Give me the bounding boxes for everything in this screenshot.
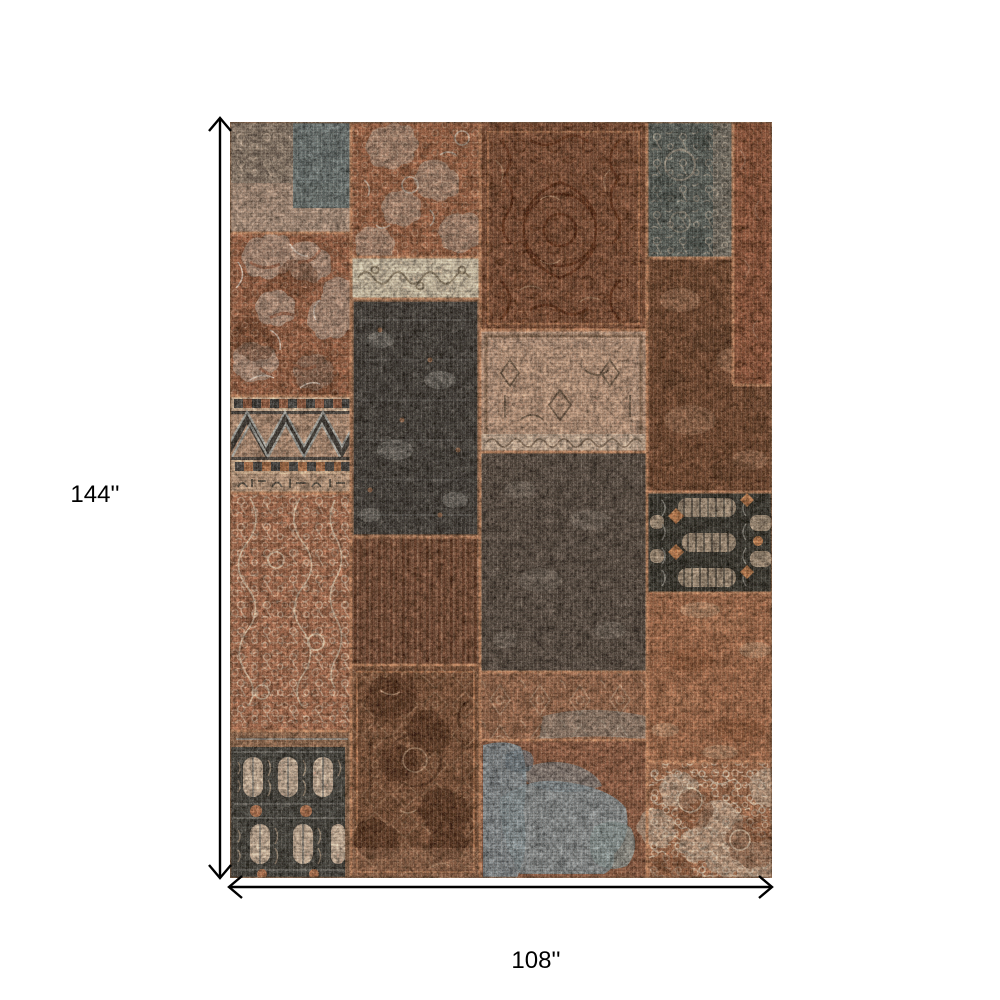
svg-text:108'': 108'': [511, 947, 560, 974]
svg-text:144'': 144'': [70, 481, 119, 508]
